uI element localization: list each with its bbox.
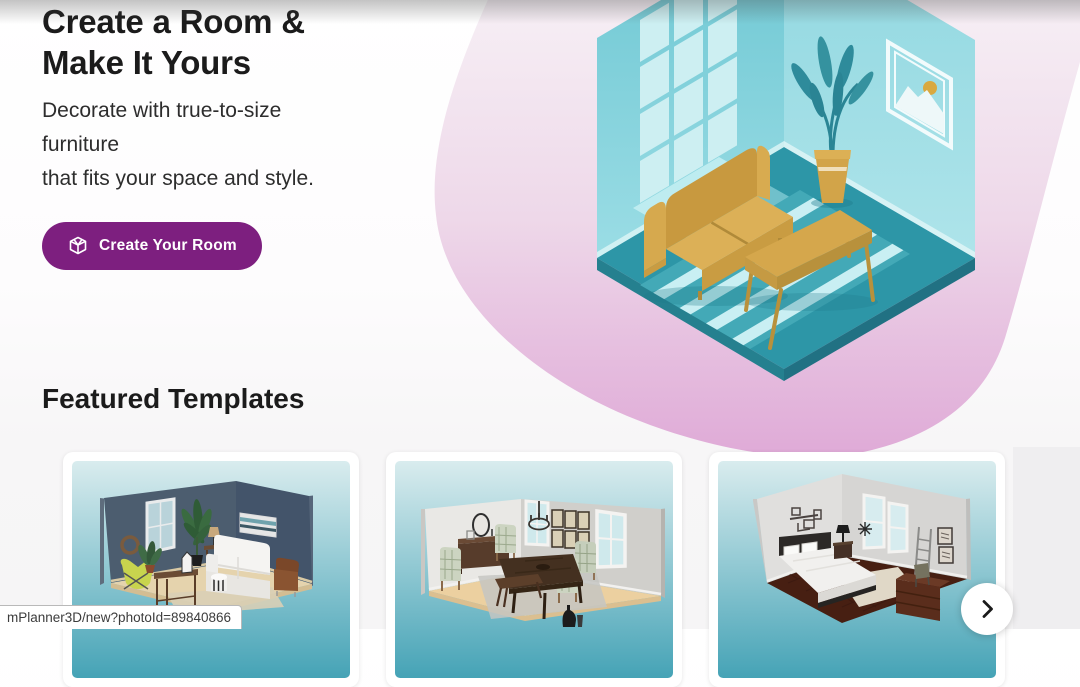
mirror [473, 514, 489, 536]
back-windows [864, 495, 907, 552]
subtitle-line-2: furniture [42, 128, 462, 162]
dining-room-thumbnail [395, 461, 673, 678]
dresser [896, 573, 950, 621]
bedroom-render [718, 461, 996, 678]
living-room-render [72, 461, 350, 678]
carousel-next-button[interactable] [961, 583, 1013, 635]
dining-room-render [395, 461, 673, 678]
cta-label: Create Your Room [99, 237, 237, 255]
title-line-1: Create a Room & [42, 1, 462, 42]
right-window [597, 511, 625, 567]
chevron-right-icon [975, 597, 999, 621]
title-line-2: Make It Yours [42, 42, 462, 83]
box-3d-icon [67, 235, 89, 257]
hero-subtitle: Decorate with true-to-size furniture tha… [42, 94, 462, 196]
subtitle-line-3: that fits your space and style. [42, 162, 462, 196]
starburst-clock [858, 522, 872, 536]
featured-templates-heading: Featured Templates [42, 383, 304, 415]
subtitle-line-1: Decorate with true-to-size [42, 94, 462, 128]
featured-templates-carousel [63, 452, 1005, 687]
create-your-room-button[interactable]: Create Your Room [42, 222, 262, 270]
carousel-overflow-area [1013, 447, 1080, 629]
striped-pouf [211, 574, 227, 592]
template-card-bedroom[interactable] [709, 452, 1005, 687]
template-card-living-room[interactable] [63, 452, 359, 687]
browser-status-bar: mPlanner3D/new?photoId=89840866 [0, 605, 242, 629]
template-card-dining-room[interactable] [386, 452, 682, 687]
living-room-thumbnail [72, 461, 350, 678]
bedroom-thumbnail [718, 461, 996, 678]
page-title: Create a Room & Make It Yours [42, 0, 462, 83]
